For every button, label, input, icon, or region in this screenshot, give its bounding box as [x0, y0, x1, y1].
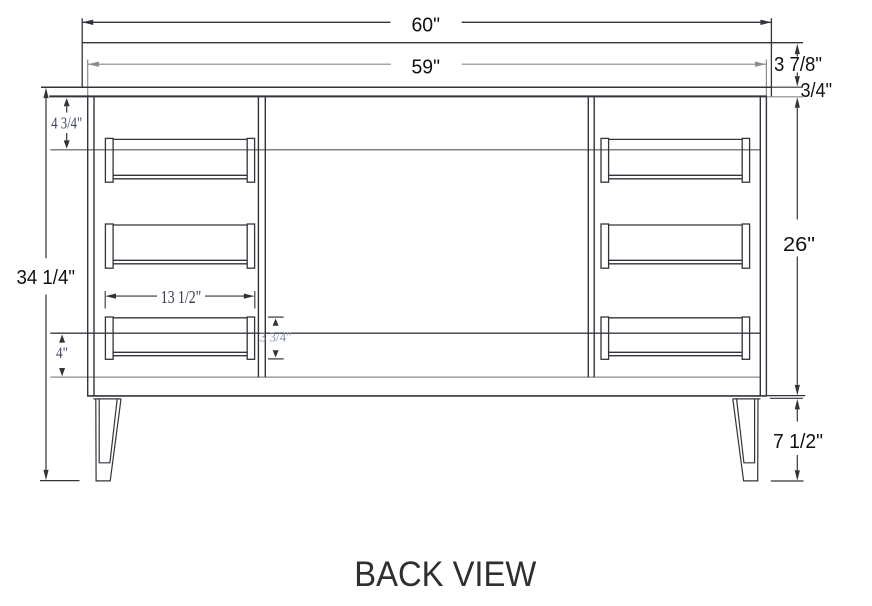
svg-text:3/4": 3/4": [801, 79, 833, 102]
svg-text:3 3/4": 3 3/4": [260, 330, 292, 345]
svg-text:BACK VIEW: BACK VIEW: [354, 555, 536, 594]
svg-text:13 1/2": 13 1/2": [161, 287, 202, 307]
svg-text:26": 26": [783, 233, 815, 256]
svg-text:3 7/8": 3 7/8": [774, 53, 822, 76]
svg-text:7 1/2": 7 1/2": [773, 430, 823, 453]
svg-text:59": 59": [412, 56, 441, 79]
svg-text:4": 4": [56, 345, 68, 362]
svg-text:60": 60": [412, 14, 441, 37]
svg-text:4 3/4": 4 3/4": [51, 113, 82, 132]
svg-text:34 1/4": 34 1/4": [17, 266, 76, 289]
